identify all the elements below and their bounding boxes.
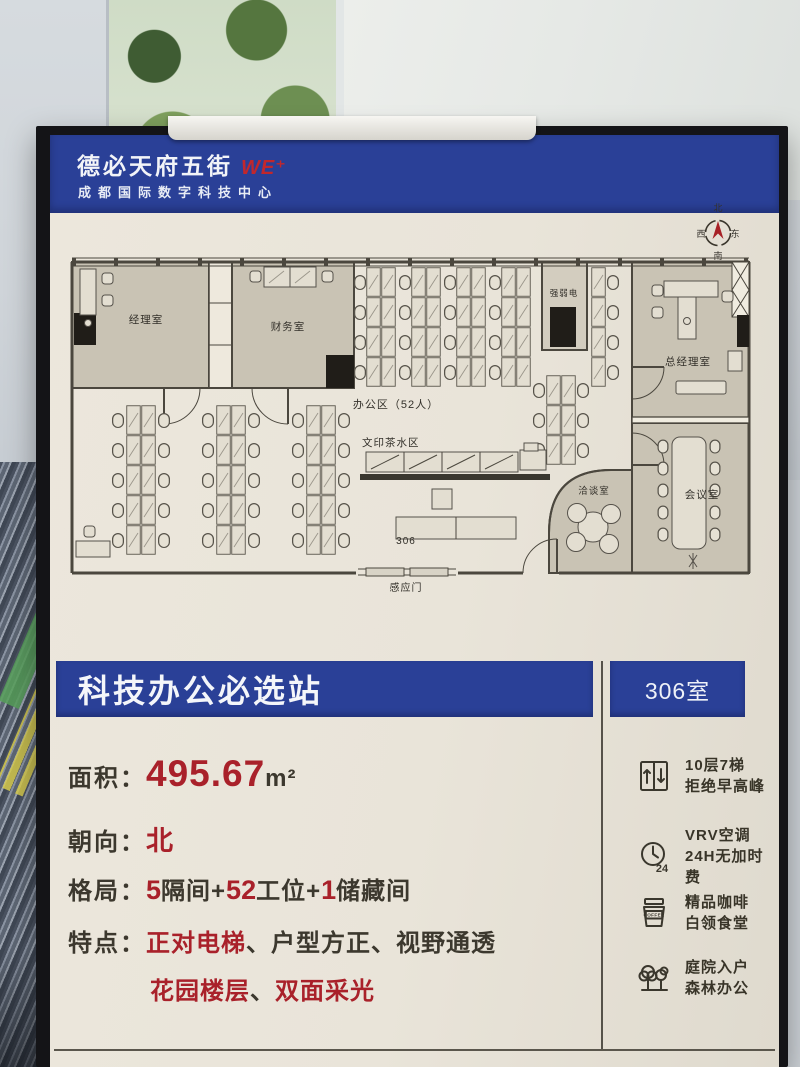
area-label: 面积： bbox=[68, 758, 146, 793]
amenity-line1: 庭院入户 bbox=[685, 957, 749, 978]
feature-daylight: 双面采光 bbox=[275, 971, 375, 1006]
compass-needle bbox=[713, 221, 724, 239]
label-meeting-room: 会议室 bbox=[685, 488, 720, 501]
amenity-line2: 森林办公 bbox=[685, 978, 749, 999]
layout-seats-text: 工位+ bbox=[256, 871, 321, 906]
amenity-line1: 10层7梯 bbox=[685, 755, 765, 776]
banner-room-no: 306室 bbox=[610, 661, 745, 717]
label-electrical-room: 强弱电 bbox=[550, 288, 579, 298]
banner-title: 科技办公必选站 bbox=[56, 666, 323, 712]
poster-header: 德必天府五街 WE⁺ 成都国际数字科技中心 bbox=[50, 135, 779, 213]
trees-icon bbox=[636, 960, 672, 996]
amenity-elevator: 10层7梯 拒绝早高峰 bbox=[636, 755, 778, 797]
compass-west-label: 西 bbox=[696, 229, 705, 239]
label-print-tea-area: 文印茶水区 bbox=[362, 436, 420, 449]
amenity-text: 10层7梯 拒绝早高峰 bbox=[685, 755, 765, 797]
sensor-door-symbol bbox=[358, 568, 456, 576]
label-sensor-door: 感应门 bbox=[390, 581, 423, 594]
clock-24h-icon: 24 bbox=[636, 839, 672, 875]
label-negotiation-room: 洽谈室 bbox=[578, 485, 610, 497]
poster-board-frame: 德必天府五街 WE⁺ 成都国际数字科技中心 北 西 东 南 bbox=[36, 126, 788, 1067]
amenity-line2: 24H无加时费 bbox=[685, 846, 778, 888]
brand-name: 德必天府五街 bbox=[77, 147, 233, 181]
detail-layout: 格局： 5 隔间+ 52 工位+ 1 储藏间 bbox=[68, 871, 411, 906]
label-finance-office: 财务室 bbox=[271, 320, 306, 333]
layout-storage-count: 1 bbox=[321, 875, 336, 906]
compass-north-label: 北 bbox=[713, 203, 722, 213]
detail-features-line2: 花园楼层 、 双面采光 bbox=[150, 971, 375, 1006]
feature-garden-floor: 花园楼层 bbox=[150, 971, 250, 1006]
print-tea-furniture bbox=[360, 443, 550, 539]
brand-subtitle: 成都国际数字科技中心 bbox=[78, 182, 278, 201]
amenity-text: 庭院入户 森林办公 bbox=[685, 957, 749, 999]
brand-row: 德必天府五街 WE⁺ bbox=[77, 147, 287, 181]
floor-plan: 经理室 财务室 办公区（52人） 文印茶水区 强弱电 总经理室 洽谈室 会议室 … bbox=[66, 255, 758, 597]
area-unit: m² bbox=[265, 765, 296, 793]
compass-rose: 北 西 东 南 bbox=[696, 201, 740, 261]
vertical-divider bbox=[601, 661, 603, 1051]
amenity-line1: 精品咖啡 bbox=[685, 892, 749, 913]
layout-rooms-count: 5 bbox=[146, 875, 161, 906]
compass-east-label: 东 bbox=[730, 228, 739, 239]
amenity-line2: 白领食堂 bbox=[685, 913, 749, 934]
feature-separator: 、 bbox=[250, 971, 275, 1006]
area-value: 495.67 bbox=[146, 753, 265, 795]
amenity-text: VRV空调 24H无加时费 bbox=[685, 825, 778, 888]
clock-24-label: 24 bbox=[656, 863, 669, 875]
label-gm-office: 总经理室 bbox=[665, 355, 711, 368]
label-manager-office: 经理室 bbox=[129, 313, 164, 326]
feature-shape-view: 、户型方正、视野通透 bbox=[246, 923, 496, 958]
poster: 德必天府五街 WE⁺ 成都国际数字科技中心 北 西 东 南 bbox=[50, 135, 779, 1067]
amenity-line2: 拒绝早高峰 bbox=[685, 776, 765, 797]
amenity-line1: VRV空调 bbox=[685, 825, 778, 846]
feature-elevator: 正对电梯 bbox=[146, 923, 246, 958]
amenity-text: 精品咖啡 白领食堂 bbox=[685, 892, 749, 934]
detail-facing: 朝向： 北 bbox=[68, 819, 173, 858]
coffee-cup-icon: COFFEE bbox=[636, 895, 672, 931]
amenity-garden: 庭院入户 森林办公 bbox=[636, 957, 778, 999]
facing-label: 朝向： bbox=[68, 822, 146, 857]
amenity-coffee: COFFEE 精品咖啡 白领食堂 bbox=[636, 892, 778, 934]
brand-logo-mark: WE⁺ bbox=[241, 155, 287, 180]
label-room-number: 306 bbox=[396, 536, 416, 547]
coffee-label: COFFEE bbox=[643, 913, 664, 918]
banner-room-label: 306室 bbox=[645, 672, 710, 706]
detail-area: 面积： 495.67 m² bbox=[68, 753, 297, 795]
photo-scene: 德必天府五街 WE⁺ 成都国际数字科技中心 北 西 东 南 bbox=[0, 0, 800, 1067]
layout-rooms-text: 隔间+ bbox=[161, 871, 226, 906]
facing-value: 北 bbox=[146, 819, 173, 858]
layout-label: 格局： bbox=[68, 871, 146, 906]
layout-storage-text: 储藏间 bbox=[336, 871, 411, 906]
elevator-icon bbox=[636, 758, 672, 794]
board-clip bbox=[168, 116, 536, 140]
label-office-area: 办公区（52人） bbox=[353, 398, 439, 411]
amenity-hvac: 24 VRV空调 24H无加时费 bbox=[636, 825, 778, 888]
bottom-rule bbox=[54, 1049, 775, 1051]
features-label: 特点： bbox=[68, 923, 146, 958]
detail-features-line1: 特点： 正对电梯 、户型方正、视野通透 bbox=[68, 923, 496, 958]
layout-seats-count: 52 bbox=[226, 875, 256, 906]
banner: 科技办公必选站 bbox=[56, 661, 593, 717]
